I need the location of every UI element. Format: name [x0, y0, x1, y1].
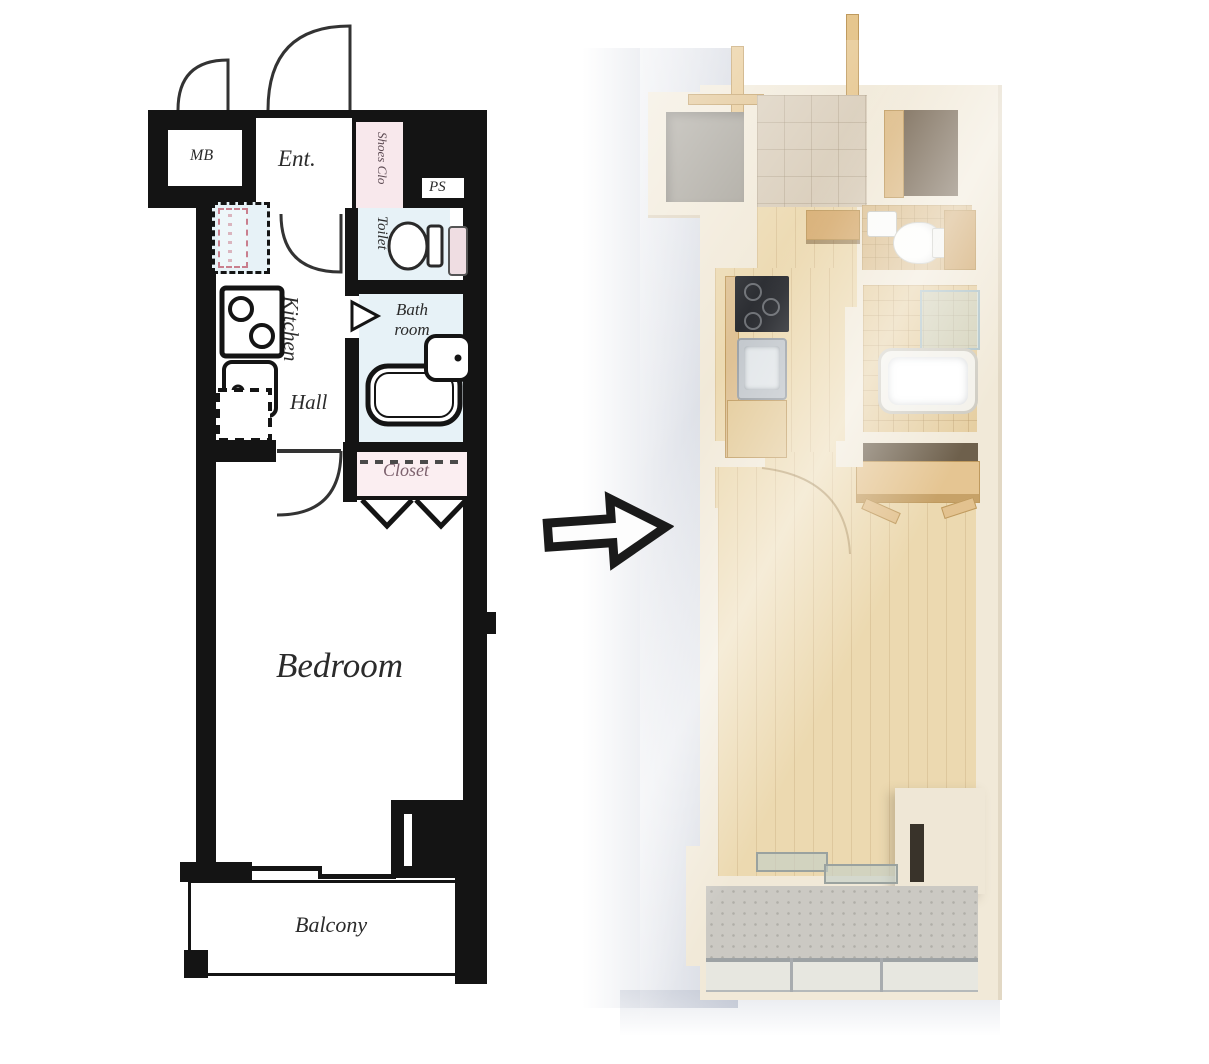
render-stove-burner-3 [744, 312, 762, 330]
render-kitchen-lower-cabinet [727, 400, 787, 458]
scene: MB Ent. Shoes Clo PS Toilet Bath room Ki… [0, 0, 1209, 1064]
render-bedroom-entry-stub-right [836, 441, 863, 467]
right-arrow-icon [546, 495, 668, 567]
render-stove-burner-1 [744, 283, 762, 301]
render-mb-door-frame [688, 94, 764, 105]
render-sliding-door-pane-2 [824, 864, 898, 884]
render-entry-tile-floor [757, 95, 867, 207]
render-toilet-sink [867, 211, 897, 237]
render-bathtub-inner [888, 357, 968, 405]
render-balcony-railing [706, 958, 978, 992]
render-shower-glass [920, 290, 980, 350]
render-sliding-door-pane-1 [756, 852, 828, 872]
render-stove-burner-2 [762, 298, 780, 316]
render-open-door-leaf-1 [731, 46, 744, 118]
render-shoe-cabinet-top [806, 210, 860, 240]
render-shoes-closet-shelf [884, 110, 904, 198]
render-closet-shelf [856, 461, 980, 503]
render-balcony-floor [706, 886, 978, 962]
render-railing-post-1 [790, 958, 793, 992]
render-corner-slot [910, 824, 924, 882]
render-mb-floor [666, 112, 744, 202]
render-kitchen-sink-basin [744, 346, 780, 390]
render-railing-post-2 [880, 958, 883, 992]
transform-arrow [537, 481, 677, 580]
render-closet-shadow [856, 443, 978, 463]
render-toilet-cabinet [944, 210, 976, 270]
render-balcony-left-wall [686, 846, 706, 966]
render-corner-block [895, 788, 985, 894]
